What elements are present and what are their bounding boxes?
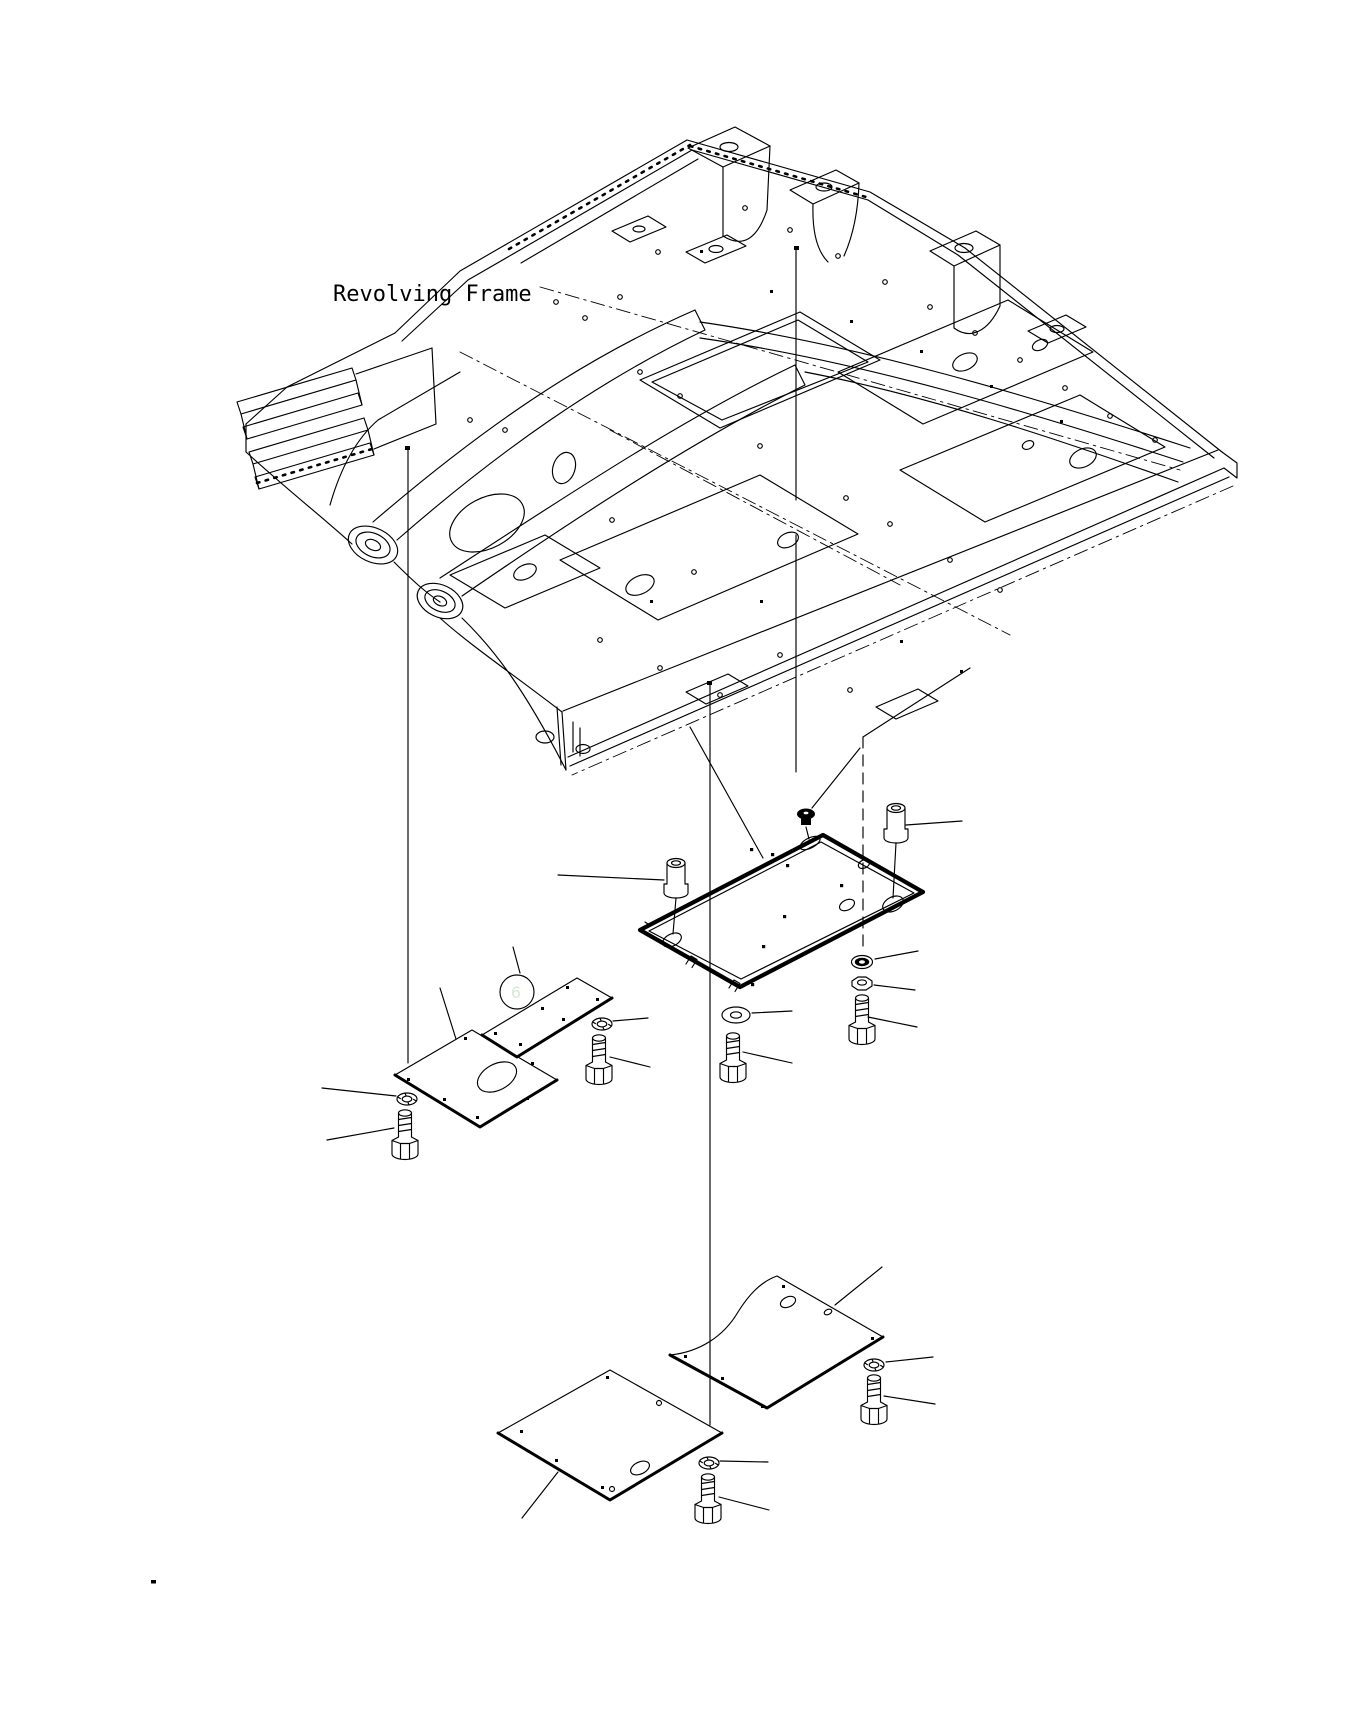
frame-bottom-rim	[246, 450, 1237, 775]
bolt-bottom-left	[695, 1474, 721, 1524]
washer-left-right	[592, 1018, 612, 1030]
frame-label: Revolving Frame	[333, 282, 532, 307]
projection-lines	[405, 246, 970, 1425]
spacer-right	[884, 804, 908, 899]
bolt-left	[392, 1110, 418, 1160]
revolving-frame-drawing	[237, 127, 1237, 775]
bolt-bottom-right	[861, 1375, 887, 1425]
undercover-plate-bottom-left-group	[498, 1370, 769, 1524]
undercover-plate-left-group: 6	[322, 947, 650, 1160]
undercover-plate-bottom-left	[498, 1370, 722, 1500]
grommet	[797, 809, 815, 840]
parts-diagram-page: Revolving Frame	[0, 0, 1367, 1733]
flat-washer	[722, 1007, 750, 1023]
callout-balloon-6[interactable]: 6	[500, 975, 534, 1009]
bolt-left-right	[586, 1035, 612, 1085]
undercover-plate-center-group	[558, 727, 962, 1083]
nut	[852, 977, 872, 990]
print-dot	[151, 1580, 156, 1584]
step-assembly	[237, 333, 436, 489]
undercover-plate-bottom-right	[670, 1276, 883, 1408]
bolt-center	[720, 1033, 746, 1083]
spacer-left	[664, 859, 688, 935]
rear-left-rail	[395, 140, 698, 341]
washer-bottom-right	[864, 1359, 884, 1371]
leader-lines-center	[558, 727, 962, 1063]
revolving-frame-parts-diagram: Revolving Frame	[0, 0, 1367, 1733]
deck-plates	[450, 300, 1165, 719]
bolt-center-right	[849, 995, 875, 1045]
mount-brackets	[612, 170, 1086, 343]
leader-lines-bottom-right	[835, 1267, 935, 1404]
callout-balloon-number: 6	[511, 983, 521, 1002]
boom-bracket-arms	[330, 310, 805, 626]
washer-left	[397, 1093, 417, 1105]
undercover-plate-center	[640, 835, 923, 987]
undercover-plate-square	[395, 1030, 557, 1127]
washer-bottom-left	[699, 1457, 719, 1469]
spring-washer	[852, 956, 873, 969]
frame-bolt-holes	[468, 206, 1158, 698]
